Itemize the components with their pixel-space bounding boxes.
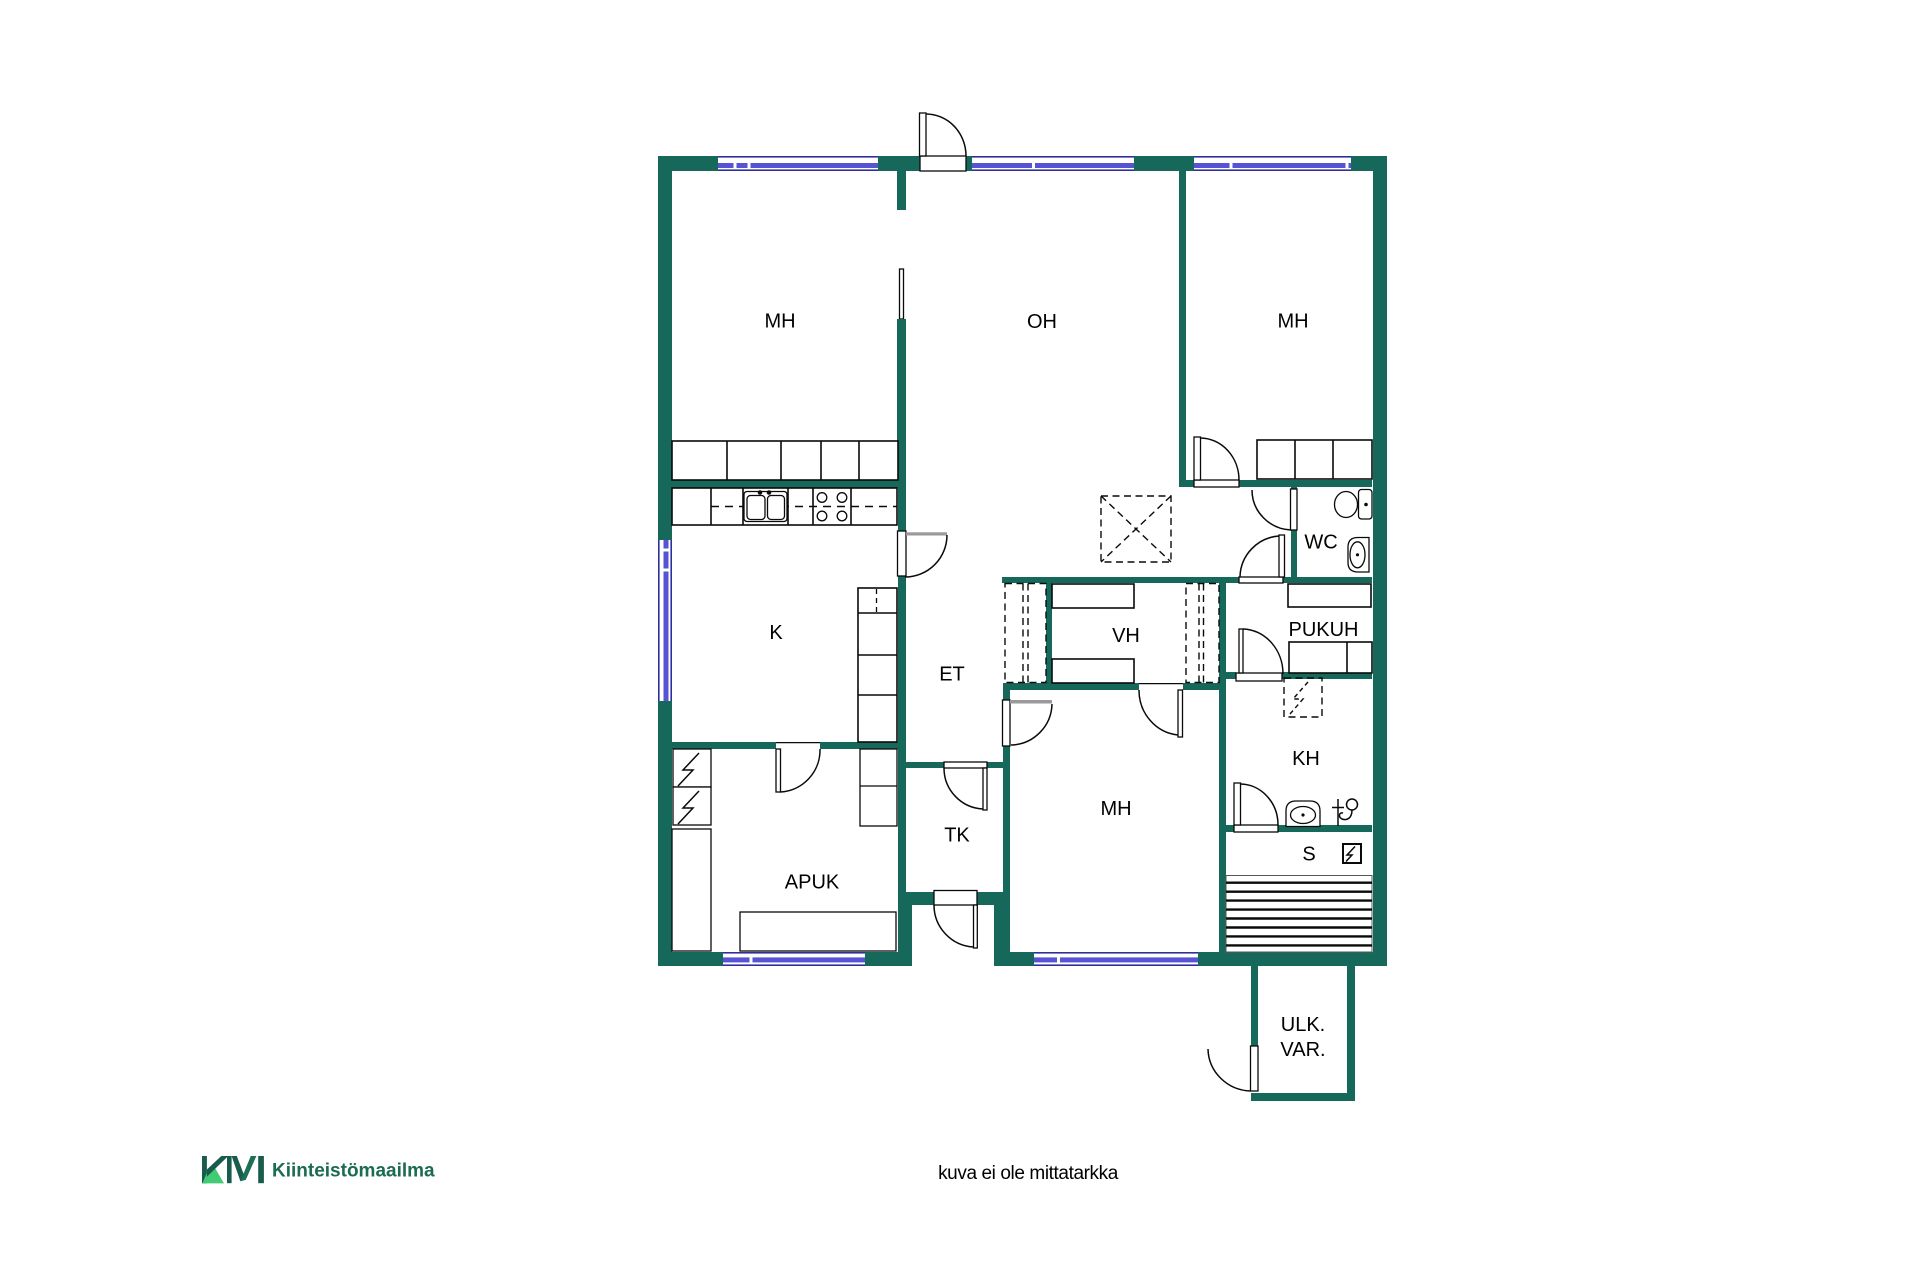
svg-text:KH: KH bbox=[1292, 748, 1320, 770]
svg-text:WC: WC bbox=[1304, 532, 1337, 554]
svg-text:K: K bbox=[769, 622, 783, 644]
svg-text:PUKUH: PUKUH bbox=[1288, 619, 1358, 641]
svg-text:TK: TK bbox=[944, 825, 970, 847]
svg-text:MH: MH bbox=[1100, 798, 1131, 820]
svg-text:Kiinteistömaailma: Kiinteistömaailma bbox=[272, 1161, 435, 1182]
svg-text:MH: MH bbox=[1277, 311, 1308, 333]
svg-text:ULK.: ULK. bbox=[1281, 1014, 1325, 1036]
svg-text:ET: ET bbox=[939, 664, 965, 686]
svg-text:VH: VH bbox=[1112, 625, 1140, 647]
svg-text:kuva ei ole mittatarkka: kuva ei ole mittatarkka bbox=[938, 1163, 1119, 1184]
svg-text:OH: OH bbox=[1027, 311, 1057, 333]
svg-text:VAR.: VAR. bbox=[1280, 1039, 1325, 1061]
svg-text:S: S bbox=[1302, 844, 1315, 866]
svg-text:APUK: APUK bbox=[785, 872, 840, 894]
svg-text:MH: MH bbox=[764, 311, 795, 333]
